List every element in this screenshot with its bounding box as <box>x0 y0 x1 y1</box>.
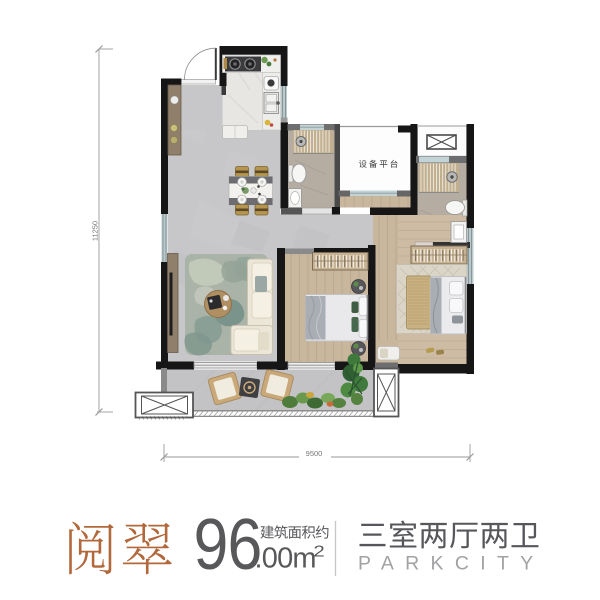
svg-text:11250: 11250 <box>91 221 100 241</box>
svg-text:.00m: .00m <box>255 543 316 575</box>
svg-text:PARKCITY: PARKCITY <box>358 553 544 575</box>
svg-text:96: 96 <box>194 505 262 585</box>
svg-text:2: 2 <box>314 543 325 560</box>
svg-text:9500: 9500 <box>306 449 323 458</box>
